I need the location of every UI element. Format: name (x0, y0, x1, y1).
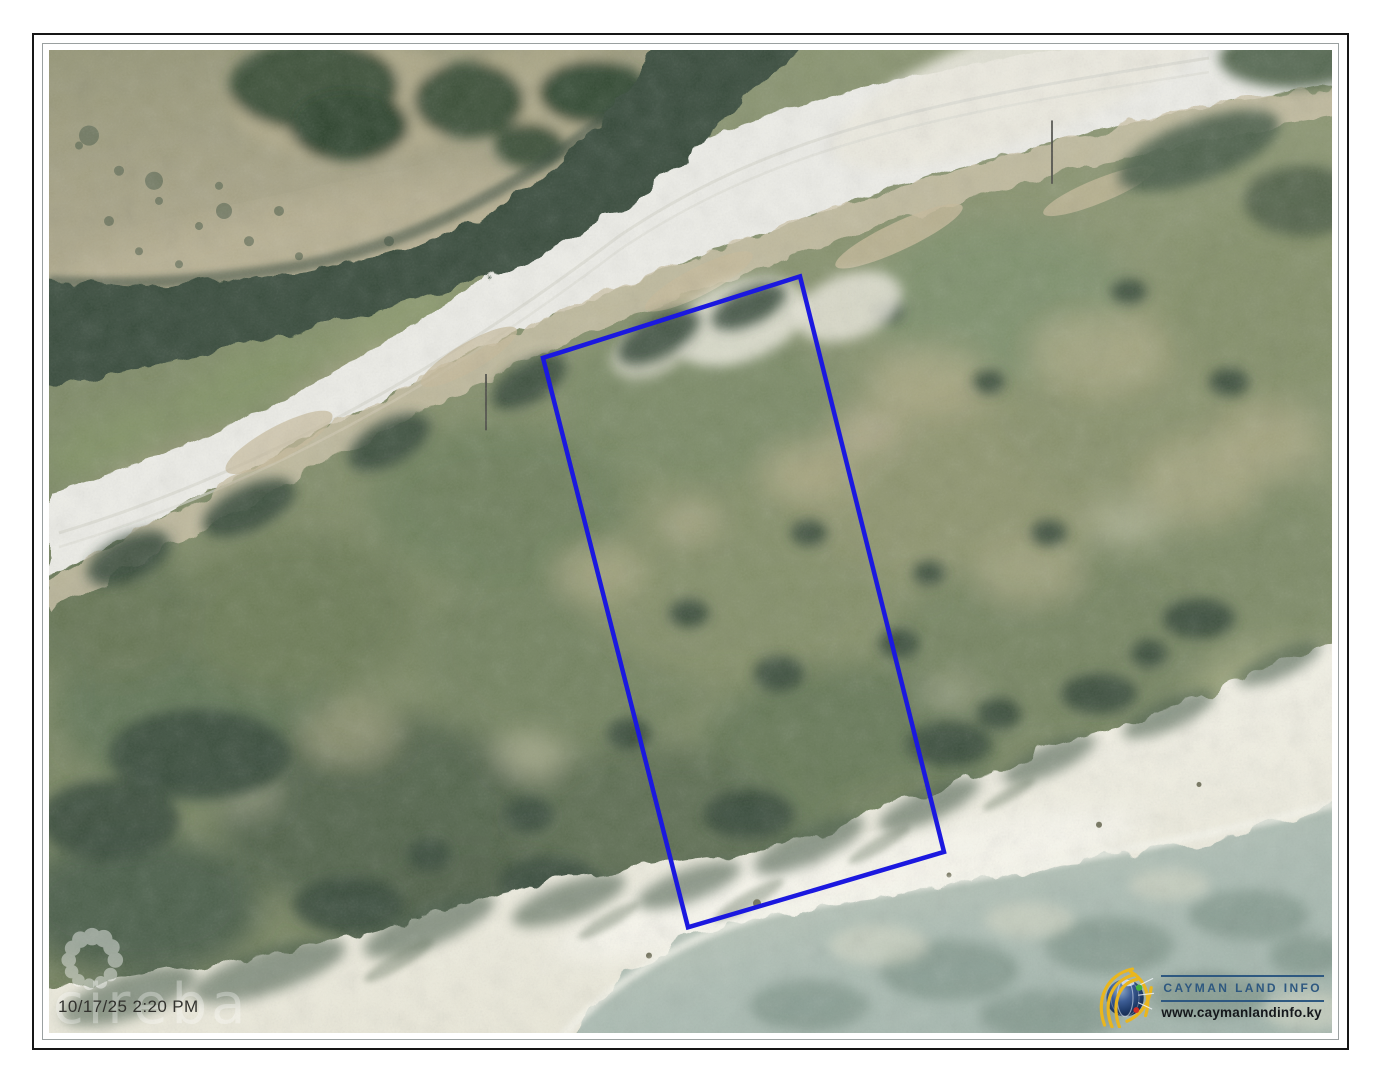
cireba-flower-icon (59, 924, 127, 994)
map-export-page: cireba 10/17/25 2:20 PM (0, 0, 1383, 1084)
brand-title: CAYMAN LAND INFO (1161, 975, 1324, 1002)
photo-haze (49, 50, 1332, 1033)
map-outer-frame: cireba 10/17/25 2:20 PM (32, 33, 1349, 1050)
brand-website: www.caymanlandinfo.ky (1161, 1002, 1324, 1020)
globe-icon (1098, 966, 1154, 1028)
cayman-land-info-logo: CAYMAN LAND INFO www.caymanlandinfo.ky (1098, 966, 1324, 1028)
timestamp: 10/17/25 2:20 PM (58, 997, 199, 1017)
aerial-photo: cireba 10/17/25 2:20 PM (49, 50, 1332, 1033)
aerial-photo-canvas (49, 50, 1332, 1033)
brand-text-block: CAYMAN LAND INFO www.caymanlandinfo.ky (1161, 975, 1324, 1020)
map-inner-frame: cireba 10/17/25 2:20 PM (42, 43, 1339, 1040)
